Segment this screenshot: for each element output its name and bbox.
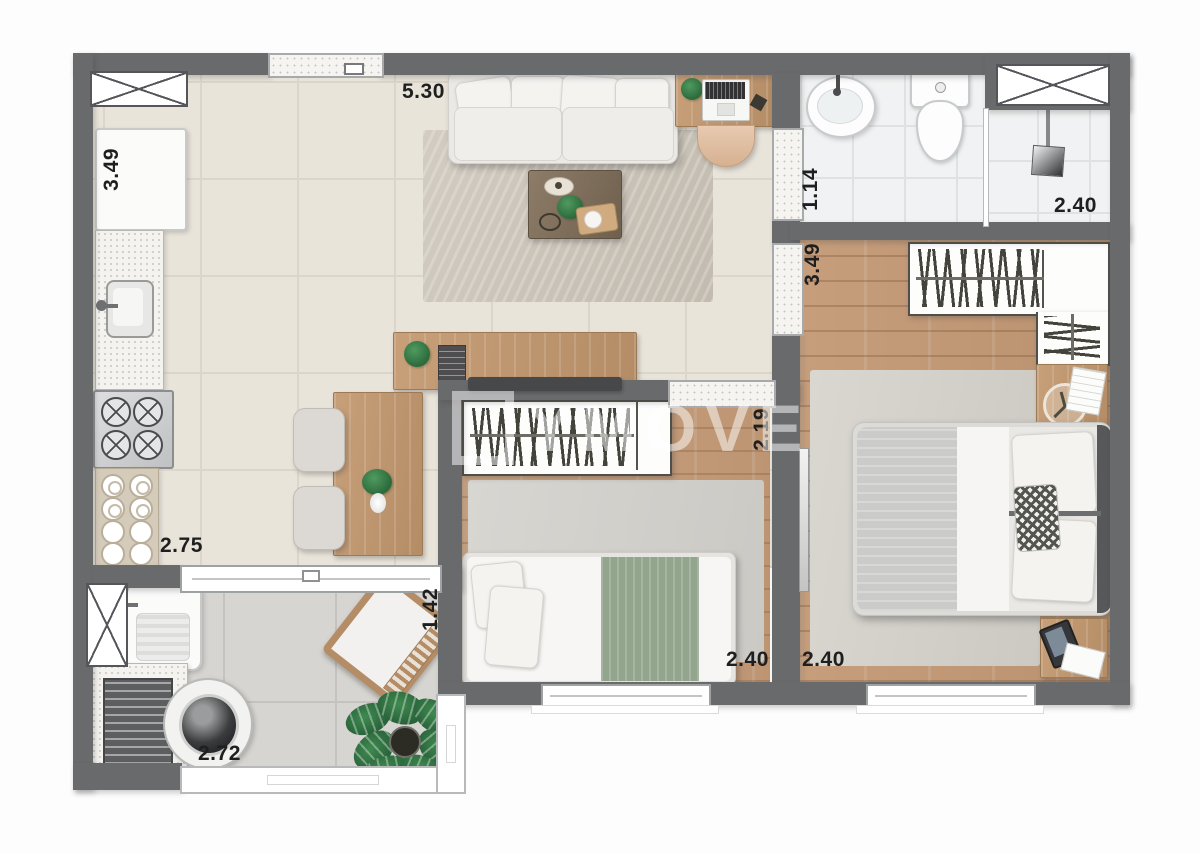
balcony-railing-right bbox=[436, 694, 466, 794]
balcony-sliding-door bbox=[180, 565, 442, 593]
sink-drain bbox=[833, 88, 841, 96]
tv-icon bbox=[468, 377, 622, 391]
bedroom2-door bbox=[668, 380, 776, 408]
laundry-sink bbox=[126, 583, 202, 671]
burner-icon bbox=[101, 397, 131, 427]
plant-pot bbox=[389, 726, 421, 758]
cup-icon bbox=[583, 209, 603, 229]
stove bbox=[93, 390, 174, 469]
centerpiece-plant-icon bbox=[362, 469, 392, 495]
wall-hall-lower bbox=[772, 330, 800, 682]
bedroom2-window bbox=[541, 684, 711, 707]
bathroom-sink bbox=[806, 76, 876, 138]
closet-divider bbox=[636, 402, 638, 470]
burner-icon bbox=[133, 430, 163, 460]
coffee-table bbox=[528, 170, 622, 239]
headboard bbox=[1097, 425, 1111, 613]
shaft-bathroom-icon bbox=[996, 64, 1110, 106]
plate-icon bbox=[101, 474, 125, 498]
bowl-icon bbox=[101, 542, 125, 566]
laptop-trackpad bbox=[717, 103, 735, 116]
bowl-icon bbox=[539, 213, 561, 231]
kitchen-cabinet bbox=[95, 468, 159, 566]
nightstand-bottom bbox=[1040, 618, 1108, 678]
folded-sheet bbox=[957, 427, 1009, 611]
mirror-icon bbox=[799, 448, 809, 592]
plate-inner bbox=[108, 481, 122, 495]
desk-plant-icon bbox=[681, 78, 703, 100]
laptop-icon bbox=[702, 79, 750, 121]
window-sill bbox=[856, 705, 1044, 714]
sliding-door-handle bbox=[302, 570, 320, 582]
dining-table bbox=[333, 392, 423, 556]
dish-icon bbox=[544, 177, 574, 196]
master-bedroom-door bbox=[772, 243, 804, 336]
wall-bottom-left bbox=[73, 763, 182, 790]
single-bed bbox=[462, 552, 736, 686]
dim-kitchen-height: 3.49 bbox=[100, 148, 124, 191]
wall-left bbox=[73, 53, 93, 790]
dim-bath-width: 1.14 bbox=[799, 168, 823, 211]
desk-accessory-icon bbox=[750, 94, 768, 112]
dining-chair bbox=[293, 486, 345, 550]
clock-hand bbox=[1053, 405, 1066, 418]
dim-service-width: 2.72 bbox=[198, 742, 241, 766]
master-closet-top bbox=[908, 242, 1110, 316]
plate-icon bbox=[101, 497, 125, 521]
flush-button bbox=[935, 82, 946, 93]
dim-kitchen-width: 2.75 bbox=[160, 534, 203, 558]
bowl-icon bbox=[129, 542, 153, 566]
wall-bathroom-bottom bbox=[790, 222, 1130, 240]
bowl-icon bbox=[101, 520, 125, 544]
wall-right bbox=[1110, 53, 1130, 705]
double-bed bbox=[852, 422, 1112, 616]
bowl-icon bbox=[129, 520, 153, 544]
tray-icon bbox=[575, 202, 619, 235]
shaft-kitchen-icon bbox=[90, 71, 188, 107]
closet-rod bbox=[470, 434, 634, 437]
shaft-service-icon bbox=[86, 583, 128, 667]
kitchen-sink bbox=[106, 280, 154, 338]
green-blanket bbox=[601, 557, 699, 681]
sideboard-plant-icon bbox=[404, 341, 430, 367]
plate-inner bbox=[136, 504, 150, 518]
desk bbox=[675, 73, 774, 127]
window-sill bbox=[531, 705, 719, 714]
dim-living-width: 5.30 bbox=[402, 80, 445, 104]
dim-bedroom2-hall: 2.19 bbox=[750, 408, 774, 451]
balcony-railing-bottom bbox=[180, 766, 466, 794]
closet-rod bbox=[916, 277, 1044, 280]
flower-icon bbox=[370, 493, 386, 513]
dim-balcony-height: 1.42 bbox=[419, 588, 443, 631]
dim-shower-width: 2.40 bbox=[1054, 194, 1097, 218]
kitchen-faucet-arm bbox=[104, 304, 118, 308]
shower-pipe bbox=[1046, 108, 1050, 150]
burner-icon bbox=[101, 430, 131, 460]
duvet bbox=[857, 427, 957, 611]
book-icon bbox=[1060, 643, 1106, 680]
patterned-cushion bbox=[1013, 484, 1061, 553]
burner-icon bbox=[133, 397, 163, 427]
washboard-ridges bbox=[136, 613, 190, 661]
picture-frame-icon bbox=[438, 345, 466, 383]
shower-head-icon bbox=[1031, 145, 1065, 177]
shower-glass-partition bbox=[983, 108, 989, 227]
entry-door bbox=[268, 53, 384, 78]
sofa bbox=[448, 70, 678, 164]
plate-inner bbox=[108, 504, 122, 518]
plate-icon bbox=[129, 474, 153, 498]
master-closet-side bbox=[1036, 312, 1110, 366]
hangers-icon bbox=[472, 408, 630, 466]
bed-pillow bbox=[484, 585, 545, 669]
floor-plan: 3.49 5.30 1.14 2.40 3.49 2.19 2.75 1.42 … bbox=[0, 0, 1200, 853]
dish-center bbox=[555, 182, 562, 189]
sofa-seat-cushion bbox=[562, 107, 674, 161]
entry-door-handle bbox=[344, 63, 364, 75]
wall-hall-upper bbox=[772, 73, 800, 130]
master-window bbox=[866, 684, 1036, 707]
laptop-keyboard bbox=[705, 82, 745, 99]
sofa-seat-cushion bbox=[454, 107, 562, 161]
closet-rod bbox=[1071, 314, 1074, 360]
plate-icon bbox=[129, 497, 153, 521]
plate-inner bbox=[136, 481, 150, 495]
book-icon bbox=[1065, 366, 1106, 415]
dim-master-height: 3.49 bbox=[801, 243, 825, 286]
dim-bedroom2-width: 2.40 bbox=[726, 648, 769, 672]
dim-master-width: 2.40 bbox=[802, 648, 845, 672]
dining-chair bbox=[293, 408, 345, 472]
bedroom2-closet bbox=[462, 400, 672, 476]
wall-bedroom2-left bbox=[438, 398, 462, 682]
nightstand-top bbox=[1036, 364, 1108, 430]
